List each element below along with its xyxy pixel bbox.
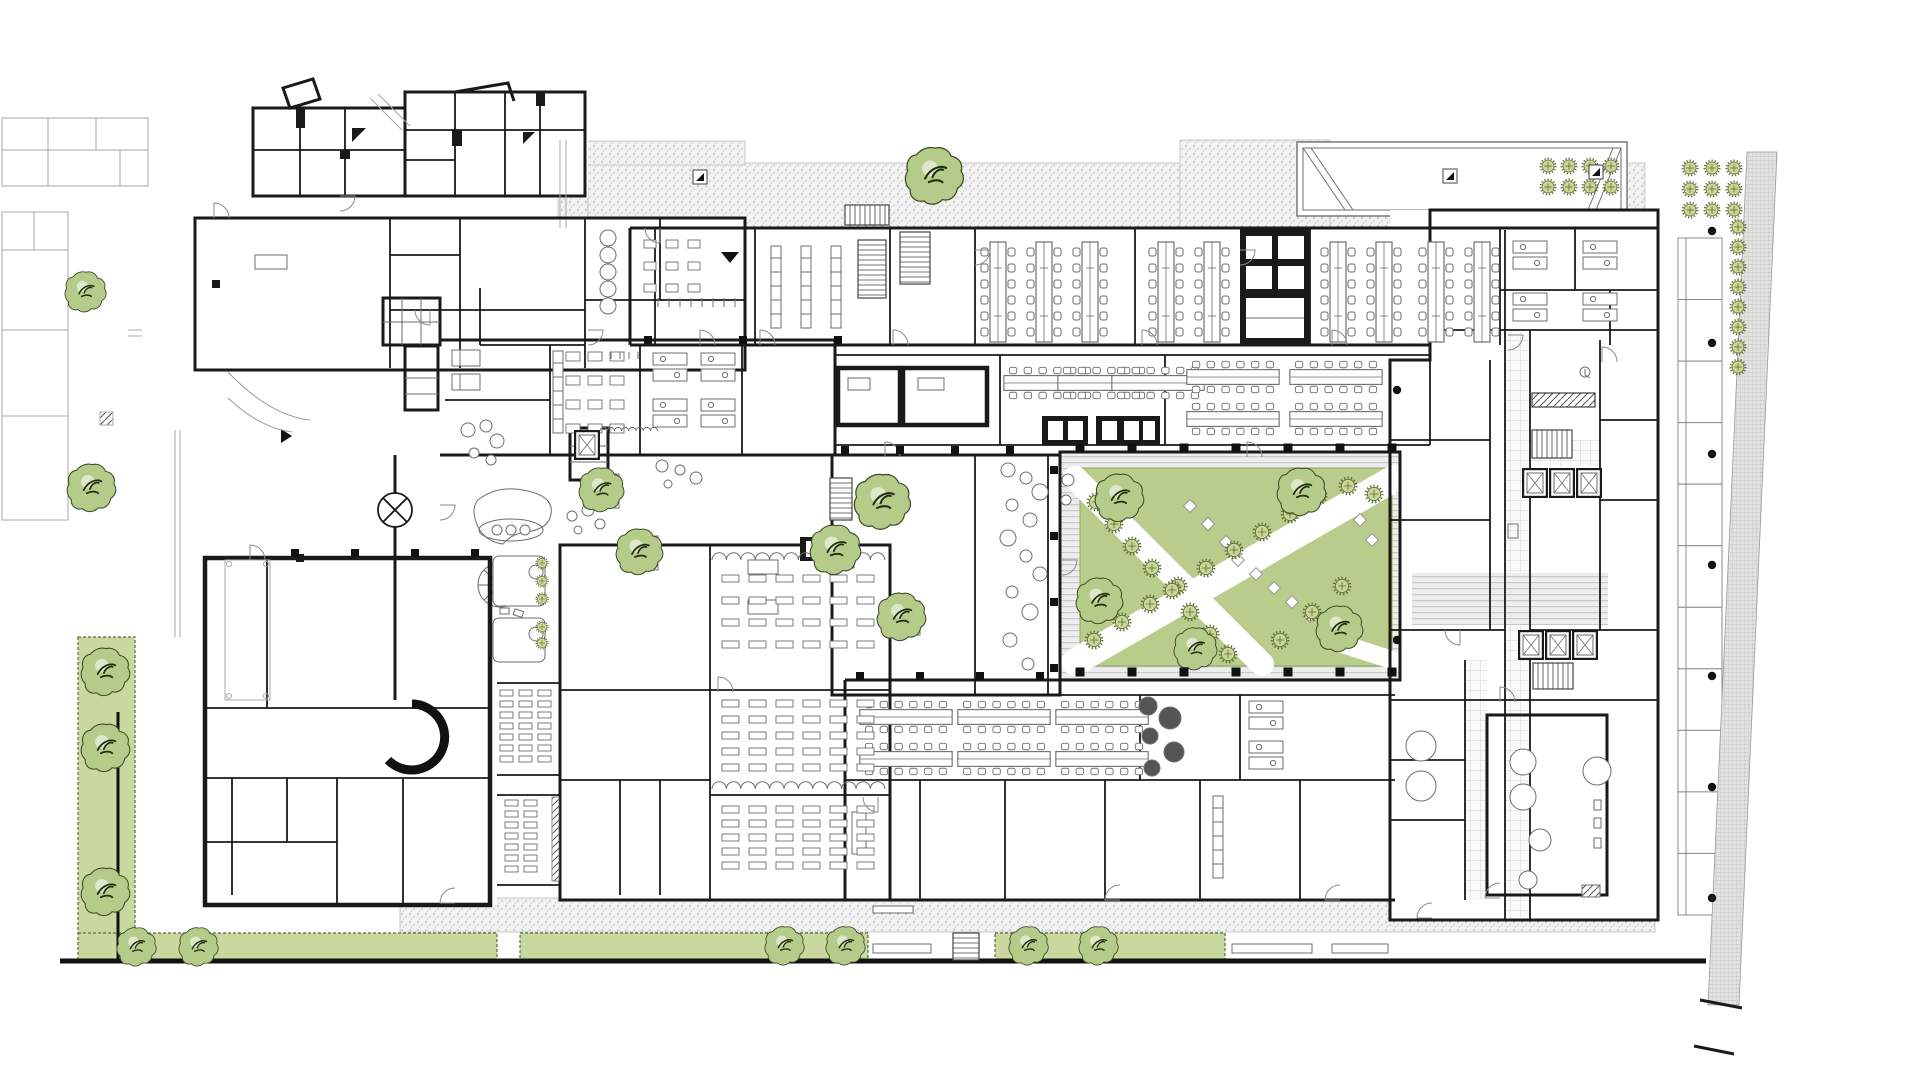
planter-circle <box>1062 474 1074 486</box>
bench <box>873 906 913 913</box>
table <box>776 834 793 841</box>
bay <box>1678 238 1722 300</box>
table <box>500 734 513 740</box>
table <box>803 748 820 755</box>
stair <box>900 232 930 284</box>
table <box>749 597 766 604</box>
shelf <box>831 246 841 328</box>
table <box>830 806 847 813</box>
table <box>830 619 847 626</box>
table <box>776 862 793 869</box>
table <box>857 700 874 707</box>
table <box>722 597 739 604</box>
elevator <box>575 431 599 459</box>
table <box>830 732 847 739</box>
planter-circle <box>1022 658 1034 670</box>
table <box>749 619 766 626</box>
table <box>566 400 580 409</box>
elevator <box>1573 631 1597 659</box>
equipment <box>1159 707 1181 729</box>
table <box>830 862 847 869</box>
column <box>916 672 924 680</box>
column <box>1050 664 1058 672</box>
column-dot <box>1708 227 1716 235</box>
table <box>524 822 537 828</box>
stair-outline <box>900 232 930 284</box>
table <box>519 690 532 696</box>
table <box>666 284 678 292</box>
table <box>857 806 874 813</box>
shrub-icon <box>1683 182 1698 197</box>
table <box>666 240 678 248</box>
table <box>776 848 793 855</box>
column-dot <box>1393 386 1401 394</box>
table <box>722 806 739 813</box>
shrub-icon <box>1683 161 1698 176</box>
table <box>519 756 532 762</box>
column <box>1232 444 1241 453</box>
planter-circle <box>1583 757 1611 785</box>
table <box>803 716 820 723</box>
planter-circle <box>595 519 605 529</box>
table <box>830 820 847 827</box>
tree-icon <box>905 147 963 204</box>
column <box>896 446 904 454</box>
shrub-icon <box>1705 203 1720 218</box>
elevator <box>1523 469 1547 497</box>
table <box>722 764 739 771</box>
planter-circle <box>1020 550 1032 562</box>
bench <box>873 944 931 953</box>
column-dot <box>1708 672 1716 680</box>
table <box>857 716 874 723</box>
column <box>1128 444 1137 453</box>
planter-circle <box>1510 784 1536 810</box>
table <box>500 745 513 751</box>
shrub-icon <box>1727 182 1742 197</box>
driveway-curve <box>228 372 310 432</box>
table <box>803 700 820 707</box>
table <box>588 376 602 385</box>
table <box>749 716 766 723</box>
table <box>722 641 739 648</box>
table <box>519 745 532 751</box>
elevator <box>1519 631 1543 659</box>
stair-outline <box>845 205 889 225</box>
planter-circle <box>1022 604 1038 620</box>
seat-rows <box>644 240 700 292</box>
column-dot <box>1708 894 1716 902</box>
planter-circle <box>1020 472 1032 484</box>
column <box>1006 446 1014 454</box>
table <box>803 597 820 604</box>
table <box>500 756 513 762</box>
table <box>749 732 766 739</box>
tree-icon <box>65 272 106 312</box>
table <box>803 806 820 813</box>
equipment <box>1164 742 1184 762</box>
planter-circle <box>675 465 685 475</box>
shelf <box>771 246 781 328</box>
equipment <box>1142 728 1158 744</box>
table <box>830 748 847 755</box>
walkway <box>585 141 745 165</box>
table <box>722 700 739 707</box>
column <box>841 446 849 454</box>
table <box>749 834 766 841</box>
bench <box>1332 944 1388 953</box>
table <box>538 690 551 696</box>
planter-circle <box>469 448 479 458</box>
table <box>722 716 739 723</box>
bays <box>1678 238 1722 915</box>
shrub-icon <box>1727 161 1742 176</box>
terrace-bays <box>1678 238 1722 915</box>
column <box>1050 532 1058 540</box>
table <box>749 862 766 869</box>
table <box>749 806 766 813</box>
table <box>830 597 847 604</box>
bay <box>1678 730 1722 792</box>
table <box>803 848 820 855</box>
table <box>500 690 513 696</box>
planter-circle <box>1001 463 1015 477</box>
table <box>566 352 580 361</box>
tree-icon <box>826 927 865 965</box>
table <box>500 712 513 718</box>
shelf <box>553 351 563 433</box>
table <box>857 732 874 739</box>
stair <box>830 478 852 520</box>
shelf <box>1213 796 1223 878</box>
table <box>803 619 820 626</box>
shrub-icon <box>1705 161 1720 176</box>
table <box>588 400 602 409</box>
stair <box>845 205 889 225</box>
column <box>644 336 652 344</box>
bay <box>1678 546 1722 608</box>
table <box>722 848 739 855</box>
column-dot <box>1708 783 1716 791</box>
tree-icon <box>67 464 116 512</box>
bed <box>452 350 480 366</box>
table <box>776 641 793 648</box>
door-swing <box>340 196 355 211</box>
table <box>500 723 513 729</box>
parking-ramp <box>1297 142 1627 216</box>
table <box>749 820 766 827</box>
column <box>1232 668 1241 677</box>
table <box>749 641 766 648</box>
table <box>524 811 537 817</box>
neighbour-buildings <box>2 118 227 700</box>
planter-circle <box>600 281 616 297</box>
column <box>1336 668 1345 677</box>
table <box>722 820 739 827</box>
table <box>722 619 739 626</box>
stair-outline <box>858 240 886 298</box>
planter-circle <box>600 264 616 280</box>
column <box>1336 444 1345 453</box>
planter-circle <box>1006 499 1018 511</box>
planter-circle <box>506 525 516 535</box>
column <box>471 549 479 557</box>
column <box>834 336 842 344</box>
table <box>857 764 874 771</box>
planter-circle <box>461 423 475 437</box>
planter-circle <box>492 525 502 535</box>
table <box>776 700 793 707</box>
planter-circle <box>480 420 492 432</box>
table <box>776 597 793 604</box>
table <box>644 284 656 292</box>
table <box>538 712 551 718</box>
planter-circle <box>1406 771 1436 801</box>
table <box>524 833 537 839</box>
table <box>610 400 624 409</box>
table <box>749 700 766 707</box>
planter-circle <box>1023 513 1037 527</box>
stair-outline <box>953 933 979 960</box>
column <box>1284 444 1293 453</box>
shrub-icon <box>1683 203 1698 218</box>
table <box>857 748 874 755</box>
stair <box>858 240 886 298</box>
planter-circle <box>490 434 504 448</box>
stair-outline <box>830 478 852 520</box>
table <box>538 756 551 762</box>
architectural-floor-plan <box>0 0 1920 1068</box>
table <box>538 723 551 729</box>
planter-circle <box>664 480 672 488</box>
column <box>1180 444 1189 453</box>
stair <box>1532 430 1572 458</box>
table <box>610 352 624 361</box>
column <box>1076 444 1085 453</box>
planter-circle <box>486 455 496 465</box>
column <box>1050 598 1058 606</box>
column <box>1388 444 1397 453</box>
bay <box>1678 607 1722 669</box>
planter-circle <box>1519 871 1537 889</box>
table <box>830 716 847 723</box>
planter-circle <box>1406 731 1436 761</box>
table <box>776 716 793 723</box>
column <box>1180 668 1189 677</box>
table <box>830 834 847 841</box>
table <box>776 748 793 755</box>
table <box>524 855 537 861</box>
planter-circle <box>656 460 668 472</box>
table <box>519 701 532 707</box>
table <box>776 820 793 827</box>
shrub-icon <box>1705 182 1720 197</box>
planter-circle <box>1033 567 1047 581</box>
planter-circle <box>574 526 582 534</box>
table <box>688 284 700 292</box>
floor-plan-canvas <box>0 0 1920 1068</box>
table <box>588 352 602 361</box>
table <box>857 575 874 582</box>
table <box>830 700 847 707</box>
table <box>519 723 532 729</box>
planter-circle <box>1510 749 1536 775</box>
table <box>857 862 874 869</box>
table <box>857 619 874 626</box>
table <box>722 834 739 841</box>
elevator <box>1546 631 1570 659</box>
column <box>739 336 747 344</box>
table <box>830 575 847 582</box>
table <box>857 834 874 841</box>
column <box>1076 668 1085 677</box>
table <box>524 844 537 850</box>
table <box>505 800 518 806</box>
planter-circle <box>520 525 530 535</box>
stair <box>953 933 979 960</box>
column <box>1388 668 1397 677</box>
gravel-strip-foot <box>1694 1000 1742 1054</box>
planting-strip <box>520 933 868 960</box>
column <box>411 549 419 557</box>
table <box>749 764 766 771</box>
table <box>644 262 656 270</box>
column-dot <box>1708 450 1716 458</box>
table <box>666 262 678 270</box>
table <box>776 764 793 771</box>
elevator <box>1550 469 1574 497</box>
table <box>722 575 739 582</box>
table <box>505 833 518 839</box>
shelf <box>801 246 811 328</box>
table <box>830 848 847 855</box>
table <box>803 834 820 841</box>
shrub-icon <box>1727 203 1742 218</box>
elevator <box>1577 469 1601 497</box>
planter-circle <box>1006 586 1018 598</box>
bench <box>1232 944 1312 953</box>
table <box>505 811 518 817</box>
table <box>776 806 793 813</box>
stair <box>1533 663 1573 689</box>
planter-circle <box>600 298 616 314</box>
table <box>524 800 537 806</box>
table <box>830 764 847 771</box>
planter-circle <box>1003 633 1017 647</box>
table <box>803 575 820 582</box>
column-dot <box>1708 561 1716 569</box>
door-swing <box>214 203 229 218</box>
table <box>505 866 518 872</box>
column <box>976 672 984 680</box>
table <box>749 748 766 755</box>
bay <box>1678 361 1722 423</box>
seat-rows <box>500 690 551 762</box>
table <box>803 732 820 739</box>
planter-circle <box>600 247 616 263</box>
table <box>644 240 656 248</box>
table <box>776 575 793 582</box>
table <box>722 748 739 755</box>
table <box>776 732 793 739</box>
table <box>500 701 513 707</box>
table <box>688 240 700 248</box>
column <box>291 549 299 557</box>
column <box>1036 672 1044 680</box>
table <box>857 820 874 827</box>
column-dot <box>1708 339 1716 347</box>
table <box>524 866 537 872</box>
table <box>505 844 518 850</box>
table <box>688 262 700 270</box>
column <box>1128 668 1137 677</box>
bay <box>1678 484 1722 546</box>
column <box>351 549 359 557</box>
tree-icon <box>765 927 804 965</box>
table <box>857 848 874 855</box>
planter-circle <box>1529 829 1551 851</box>
table <box>803 764 820 771</box>
table <box>857 597 874 604</box>
bed <box>452 374 480 390</box>
table <box>610 376 624 385</box>
planter-circle <box>1061 495 1071 505</box>
table <box>830 641 847 648</box>
table <box>519 712 532 718</box>
table <box>566 376 580 385</box>
column <box>1284 668 1293 677</box>
table <box>803 862 820 869</box>
column <box>951 446 959 454</box>
planter-circle <box>567 511 577 521</box>
table <box>803 820 820 827</box>
table <box>538 701 551 707</box>
equipment <box>1144 760 1160 776</box>
table <box>857 641 874 648</box>
table <box>722 732 739 739</box>
table <box>610 424 624 433</box>
planter-circle <box>1000 530 1016 546</box>
table <box>538 734 551 740</box>
column <box>856 672 864 680</box>
equipment <box>1139 697 1157 715</box>
table <box>538 745 551 751</box>
column <box>1050 466 1058 474</box>
planter-circle <box>1032 484 1048 500</box>
column-dot <box>1393 636 1401 644</box>
table <box>722 862 739 869</box>
bay <box>1678 300 1722 362</box>
planter-circle <box>600 230 616 246</box>
table <box>505 822 518 828</box>
table <box>519 734 532 740</box>
table <box>505 855 518 861</box>
planter-circle <box>690 472 702 484</box>
table <box>776 619 793 626</box>
table <box>803 641 820 648</box>
table <box>749 848 766 855</box>
table <box>749 575 766 582</box>
seat-rows <box>505 800 537 872</box>
